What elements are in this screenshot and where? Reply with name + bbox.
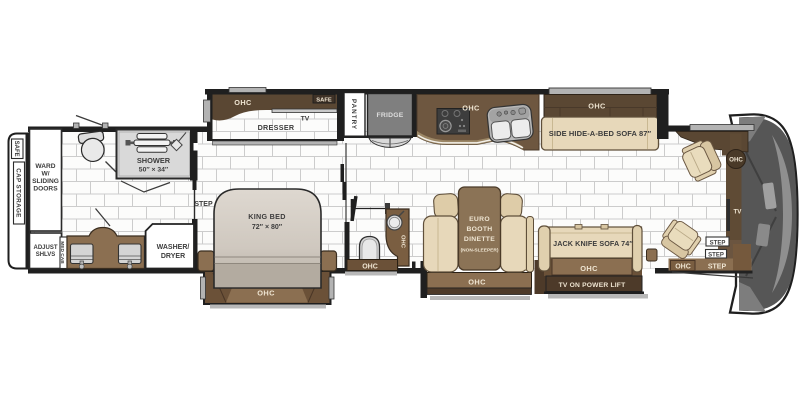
svg-text:BOOTH: BOOTH (466, 226, 492, 233)
svg-text:OHC: OHC (400, 235, 406, 249)
svg-text:PANTRY: PANTRY (350, 99, 357, 130)
svg-text:FRIDGE: FRIDGE (377, 112, 404, 119)
svg-text:50″ × 34″: 50″ × 34″ (139, 167, 169, 174)
svg-text:OHC: OHC (462, 104, 480, 113)
svg-text:TV: TV (301, 116, 310, 123)
svg-text:TV ON POWER LIFT: TV ON POWER LIFT (559, 282, 626, 289)
svg-text:JACK KNIFE SOFA 74″: JACK KNIFE SOFA 74″ (553, 239, 633, 248)
svg-text:SIDE HIDE-A-BED SOFA 87″: SIDE HIDE-A-BED SOFA 87″ (549, 129, 652, 138)
svg-text:WARD: WARD (35, 163, 55, 170)
svg-text:CAP STORAGE: CAP STORAGE (15, 168, 22, 218)
svg-text:MED CAB: MED CAB (59, 241, 65, 264)
svg-text:SHLVS: SHLVS (36, 252, 56, 258)
svg-text:OHC: OHC (675, 263, 691, 270)
svg-text:OHC: OHC (234, 98, 252, 107)
svg-text:OHC: OHC (257, 289, 275, 298)
svg-text:STEP: STEP (708, 264, 727, 271)
svg-text:STEP: STEP (708, 252, 724, 258)
svg-text:OHC: OHC (468, 278, 486, 287)
svg-text:DRYER: DRYER (161, 253, 185, 260)
svg-text:W/: W/ (41, 171, 49, 178)
svg-text:WASHER/: WASHER/ (157, 244, 190, 251)
svg-text:STEP: STEP (710, 240, 726, 246)
svg-text:TV: TV (734, 209, 743, 216)
svg-text:SLIDING: SLIDING (32, 178, 59, 185)
svg-text:DOORS: DOORS (33, 186, 58, 193)
svg-text:ADJUST: ADJUST (33, 245, 57, 251)
svg-text:(NON-SLEEPER): (NON-SLEEPER) (461, 248, 499, 254)
svg-text:OHC: OHC (588, 102, 606, 111)
svg-text:OHC: OHC (729, 157, 743, 164)
svg-text:OHC: OHC (580, 264, 598, 273)
svg-text:DRESSER: DRESSER (258, 123, 295, 132)
svg-text:SAFE: SAFE (13, 141, 19, 157)
svg-text:DINETTE: DINETTE (464, 236, 495, 243)
svg-text:OHC: OHC (362, 263, 378, 270)
svg-text:SHOWER: SHOWER (137, 156, 171, 165)
svg-text:EURO: EURO (469, 216, 490, 223)
svg-text:72″ × 80″: 72″ × 80″ (252, 224, 283, 231)
svg-text:KING BED: KING BED (248, 212, 286, 221)
svg-text:STEP: STEP (194, 201, 213, 208)
svg-text:SAFE: SAFE (316, 97, 332, 103)
